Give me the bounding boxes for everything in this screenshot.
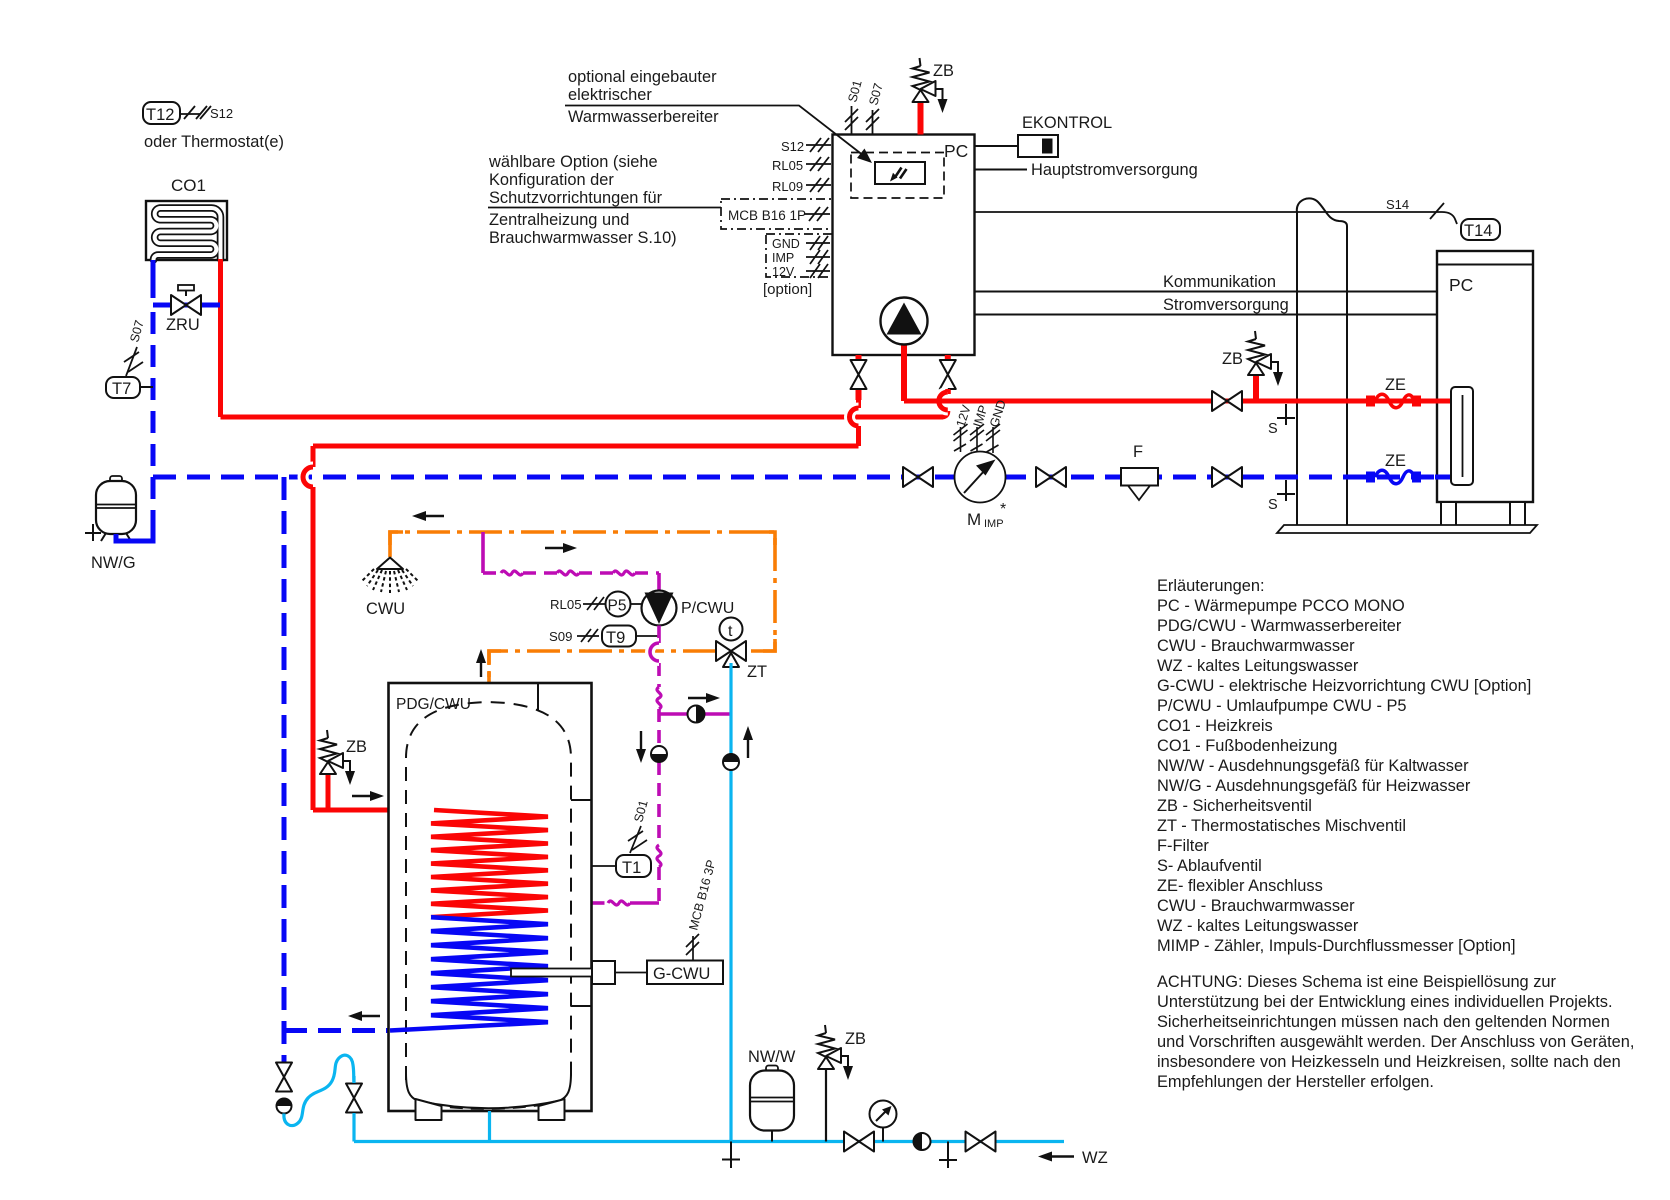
svg-text:Zentralheizung und: Zentralheizung und <box>489 211 629 229</box>
svg-text:CO1 - Heizkreis: CO1 - Heizkreis <box>1157 717 1273 735</box>
svg-text:WZ - kaltes Leitungswasser: WZ - kaltes Leitungswasser <box>1157 917 1359 935</box>
svg-text:MIMP - Zähler, Impuls-Durchflu: MIMP - Zähler, Impuls-Durchflussmesser [… <box>1157 937 1516 955</box>
svg-text:PC: PC <box>1449 275 1473 295</box>
svg-text:CWU: CWU <box>366 600 405 618</box>
svg-text:ZB - Sicherheitsventil: ZB - Sicherheitsventil <box>1157 797 1312 815</box>
svg-text:ZB: ZB <box>933 62 954 80</box>
svg-text:Erläuterungen:: Erläuterungen: <box>1157 577 1265 595</box>
svg-text:T7: T7 <box>112 380 131 398</box>
svg-text:[option]: [option] <box>763 281 812 298</box>
svg-text:wählbare Option (siehe: wählbare Option (siehe <box>488 153 658 171</box>
svg-text:ZB: ZB <box>845 1030 866 1048</box>
svg-text:IMP: IMP <box>772 251 794 265</box>
svg-text:T9: T9 <box>606 629 625 647</box>
svg-text:PDG/CWU: PDG/CWU <box>396 696 471 713</box>
svg-text:S12: S12 <box>781 139 804 154</box>
svg-text:CO1 - Fußbodenheizung: CO1 - Fußbodenheizung <box>1157 737 1337 755</box>
svg-text:F-Filter: F-Filter <box>1157 837 1209 855</box>
svg-text:MCB B16 1P: MCB B16 1P <box>728 208 806 223</box>
svg-text:Hauptstromversorgung: Hauptstromversorgung <box>1031 161 1198 179</box>
svg-text:NW/G: NW/G <box>91 554 136 572</box>
svg-text:RL09: RL09 <box>772 179 803 194</box>
svg-text:M: M <box>967 510 981 529</box>
svg-text:insbesondere von Heizkesseln u: insbesondere von Heizkesseln und Heizkre… <box>1157 1053 1621 1071</box>
svg-text:Brauchwarmwasser S.10): Brauchwarmwasser S.10) <box>489 229 677 247</box>
svg-text:RL05: RL05 <box>772 158 803 173</box>
svg-text:P5: P5 <box>608 598 627 615</box>
svg-text:Stromversorgung: Stromversorgung <box>1163 296 1289 314</box>
svg-text:Warmwasserbereiter: Warmwasserbereiter <box>568 108 719 126</box>
svg-text:oder Thermostat(e): oder Thermostat(e) <box>144 133 284 151</box>
svg-text:ZE: ZE <box>1385 376 1406 394</box>
svg-text:WZ: WZ <box>1082 1149 1108 1167</box>
svg-text:WZ - kaltes Leitungswasser: WZ - kaltes Leitungswasser <box>1157 657 1359 675</box>
svg-text:optional eingebauter: optional eingebauter <box>568 68 717 86</box>
svg-text:Schutzvorrichtungen für: Schutzvorrichtungen für <box>489 189 663 207</box>
svg-text:RL05: RL05 <box>550 597 582 612</box>
svg-text:*: * <box>1000 501 1006 518</box>
svg-text:ACHTUNG: Dieses Schema ist ein: ACHTUNG: Dieses Schema ist eine Beispiel… <box>1157 973 1557 991</box>
svg-text:Unterstützung bei der Entwickl: Unterstützung bei der Entwicklung eines … <box>1157 993 1613 1011</box>
svg-text:S09: S09 <box>549 629 572 644</box>
svg-text:CWU - Brauchwarmwasser: CWU - Brauchwarmwasser <box>1157 897 1355 915</box>
svg-text:Empfehlungen der Hersteller er: Empfehlungen der Hersteller erfolgen. <box>1157 1073 1434 1091</box>
svg-text:S- Ablaufventil: S- Ablaufventil <box>1157 857 1262 875</box>
svg-text:NW/G - Ausdehnungsgefäß für He: NW/G - Ausdehnungsgefäß für Heizwasser <box>1157 777 1471 795</box>
svg-text:ZB: ZB <box>346 738 367 756</box>
svg-text:ZT - Thermostatisches Mischven: ZT - Thermostatisches Mischventil <box>1157 817 1406 835</box>
svg-text:S12: S12 <box>210 106 233 121</box>
svg-text:T14: T14 <box>1464 222 1492 240</box>
svg-text:CO1: CO1 <box>171 176 206 195</box>
svg-text:S14: S14 <box>1386 197 1409 212</box>
svg-text:Sicherheitseinrichtungen müsse: Sicherheitseinrichtungen müssen nach den… <box>1157 1013 1610 1031</box>
svg-text:P/CWU - Umlaufpumpe CWU - P5: P/CWU - Umlaufpumpe CWU - P5 <box>1157 697 1407 715</box>
svg-text:12V: 12V <box>772 265 795 279</box>
svg-text:ZRU: ZRU <box>166 316 200 334</box>
svg-text:t: t <box>728 623 733 640</box>
svg-text:Kommunikation: Kommunikation <box>1163 273 1276 291</box>
svg-text:EKONTROL: EKONTROL <box>1022 114 1112 132</box>
svg-text:F: F <box>1133 443 1143 461</box>
svg-text:Konfiguration der: Konfiguration der <box>489 171 614 189</box>
svg-text:NW/W - Ausdehnungsgefäß für Ka: NW/W - Ausdehnungsgefäß für Kaltwasser <box>1157 757 1469 775</box>
svg-text:S: S <box>1268 421 1278 437</box>
svg-text:und Vorschriften ausgewählt we: und Vorschriften ausgewählt werden. Der … <box>1157 1033 1634 1051</box>
svg-text:T12: T12 <box>146 106 174 124</box>
svg-text:GND: GND <box>772 237 800 251</box>
svg-text:PC: PC <box>944 141 968 161</box>
svg-text:P/CWU: P/CWU <box>681 600 734 617</box>
svg-text:T1: T1 <box>622 859 641 877</box>
svg-text:NW/W: NW/W <box>748 1048 796 1066</box>
svg-text:ZE- flexibler Anschluss: ZE- flexibler Anschluss <box>1157 877 1323 895</box>
svg-text:PDG/CWU - Warmwasserbereiter: PDG/CWU - Warmwasserbereiter <box>1157 617 1402 635</box>
svg-text:IMP: IMP <box>984 518 1004 530</box>
svg-text:CWU - Brauchwarmwasser: CWU - Brauchwarmwasser <box>1157 637 1355 655</box>
svg-text:elektrischer: elektrischer <box>568 86 652 104</box>
svg-text:S: S <box>1268 497 1278 513</box>
svg-text:G-CWU - elektrische Heizvorric: G-CWU - elektrische Heizvorrichtung CWU … <box>1157 677 1531 695</box>
svg-text:ZE: ZE <box>1385 452 1406 470</box>
svg-text:PC - Wärmepumpe PCCO MONO: PC - Wärmepumpe PCCO MONO <box>1157 597 1405 615</box>
svg-text:ZT: ZT <box>747 663 767 681</box>
svg-text:ZB: ZB <box>1222 350 1243 368</box>
svg-text:G-CWU: G-CWU <box>653 965 710 983</box>
